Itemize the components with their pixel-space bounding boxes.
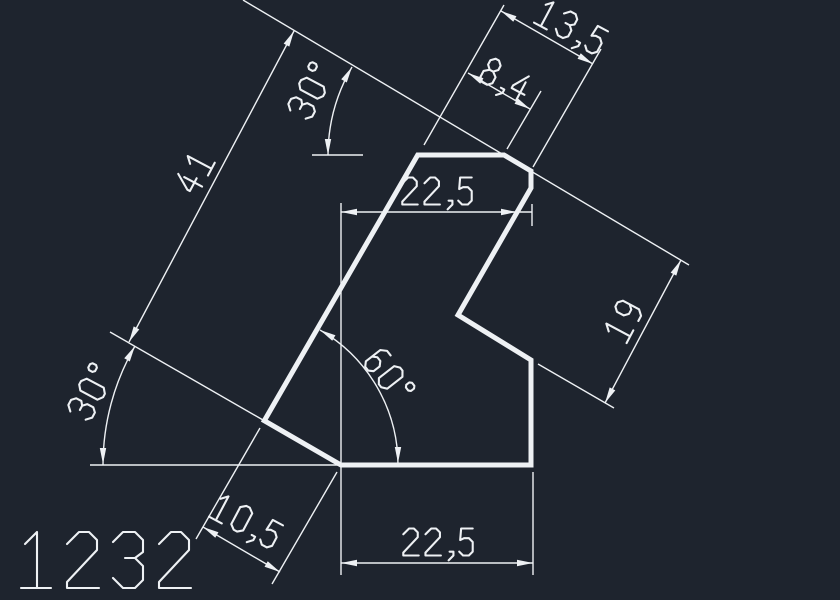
cad-viewport [0,0,840,600]
canvas-background [0,0,840,600]
cad-canvas [0,0,840,600]
